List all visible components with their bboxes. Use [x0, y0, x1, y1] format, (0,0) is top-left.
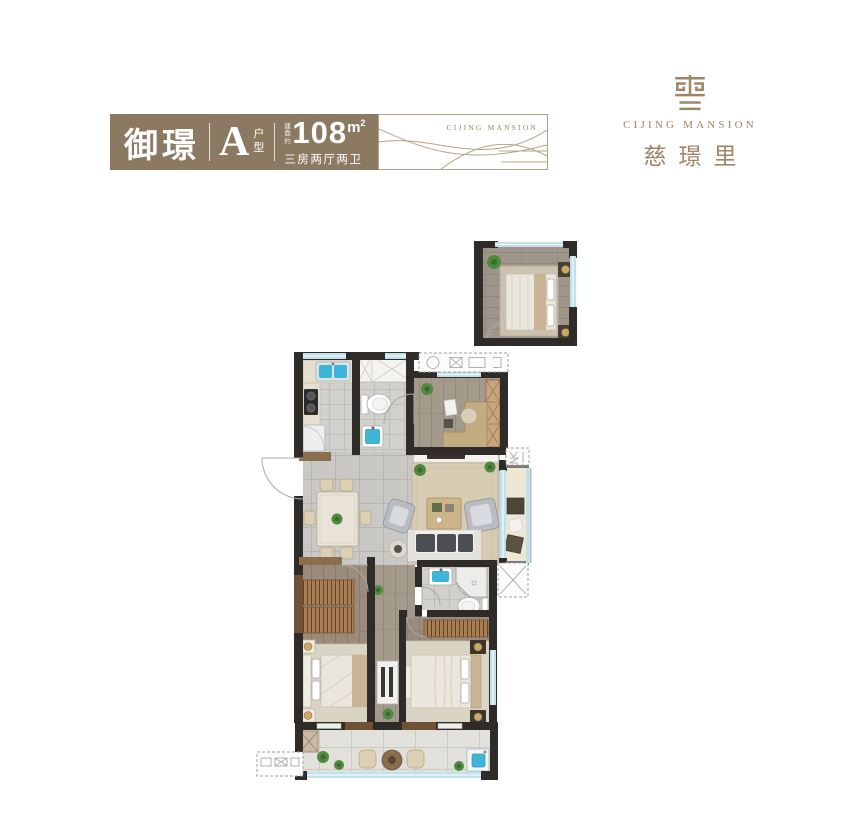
dining-chair [340, 479, 353, 491]
desk-item [444, 419, 453, 428]
bathroom-sink [429, 568, 452, 585]
ac-platform-east [506, 448, 529, 465]
dining-chair [320, 479, 333, 491]
floor-plan-drawing [0, 0, 845, 818]
wardrobe [424, 620, 488, 637]
study-wardrobe [486, 380, 500, 447]
balcony-chair [407, 750, 424, 768]
balcony-chair [359, 750, 376, 768]
dining-chair [360, 511, 371, 525]
floor-cushion [507, 498, 524, 514]
sofa [408, 530, 481, 561]
nightstand [470, 640, 486, 654]
bedroom-top-bed [506, 274, 556, 330]
cooktop [304, 389, 318, 415]
sliding-door-panel [317, 724, 341, 729]
bathroom-sink [362, 426, 383, 447]
ac-platform-west [257, 752, 303, 776]
plant-icon [334, 760, 344, 770]
dining-chair [304, 511, 315, 525]
bedroom-top [474, 241, 577, 346]
shoe-cabinet [299, 452, 331, 461]
plant-icon [421, 383, 433, 395]
wardrobe [299, 580, 354, 605]
nightstand [301, 640, 315, 653]
balcony-table [382, 750, 402, 770]
plant-icon [454, 761, 464, 771]
plant-icon [414, 464, 426, 476]
bed [303, 655, 367, 707]
plant-icon [317, 751, 329, 763]
sliding-door-panel [438, 724, 462, 729]
plant-icon [383, 709, 394, 720]
papers [444, 399, 457, 415]
wardrobe [299, 607, 354, 633]
kitchen-sink [316, 362, 350, 381]
plant-icon [487, 255, 501, 269]
washing-machine [467, 749, 489, 771]
dining-table [317, 492, 358, 546]
nightstand [470, 710, 486, 724]
linen-closet [377, 661, 398, 704]
armchair [464, 497, 500, 533]
floor-lamp [389, 540, 407, 558]
ac-platform-bath [498, 563, 528, 597]
nightstand [301, 709, 315, 722]
pillow [508, 517, 524, 533]
ac-platform-north [419, 353, 508, 372]
coffee-table [427, 498, 461, 529]
entry-door-arc [262, 458, 303, 499]
plant-icon [485, 462, 496, 473]
floor-cushion [505, 535, 524, 554]
fridge [303, 425, 325, 451]
master-bed [404, 655, 481, 708]
floor-plan-page: 御璟 A 户型 建面约 108 m2 三房两厅两卫 [0, 0, 845, 818]
console-table [299, 557, 342, 565]
desk-chair [461, 408, 477, 424]
